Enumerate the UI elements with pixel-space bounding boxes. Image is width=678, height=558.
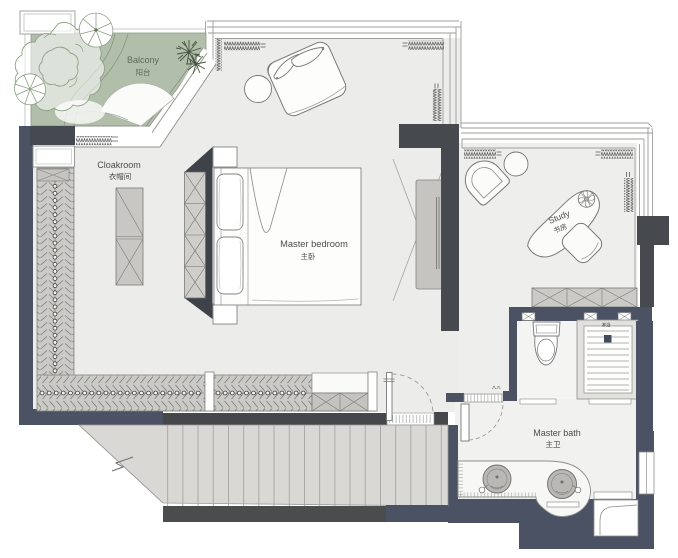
svg-text:Cloakroom: Cloakroom [97, 160, 141, 170]
svg-text:淋浴: 淋浴 [602, 322, 611, 329]
svg-text:衣帽间: 衣帽间 [109, 171, 132, 181]
svg-text:Master bedroom: Master bedroom [280, 239, 348, 249]
svg-text:Balcony: Balcony [127, 55, 160, 65]
svg-text:阳台: 阳台 [136, 67, 151, 77]
svg-text:主卫: 主卫 [546, 439, 561, 449]
svg-text:Master bath: Master bath [533, 428, 581, 438]
svg-text:主卧: 主卧 [301, 251, 316, 261]
